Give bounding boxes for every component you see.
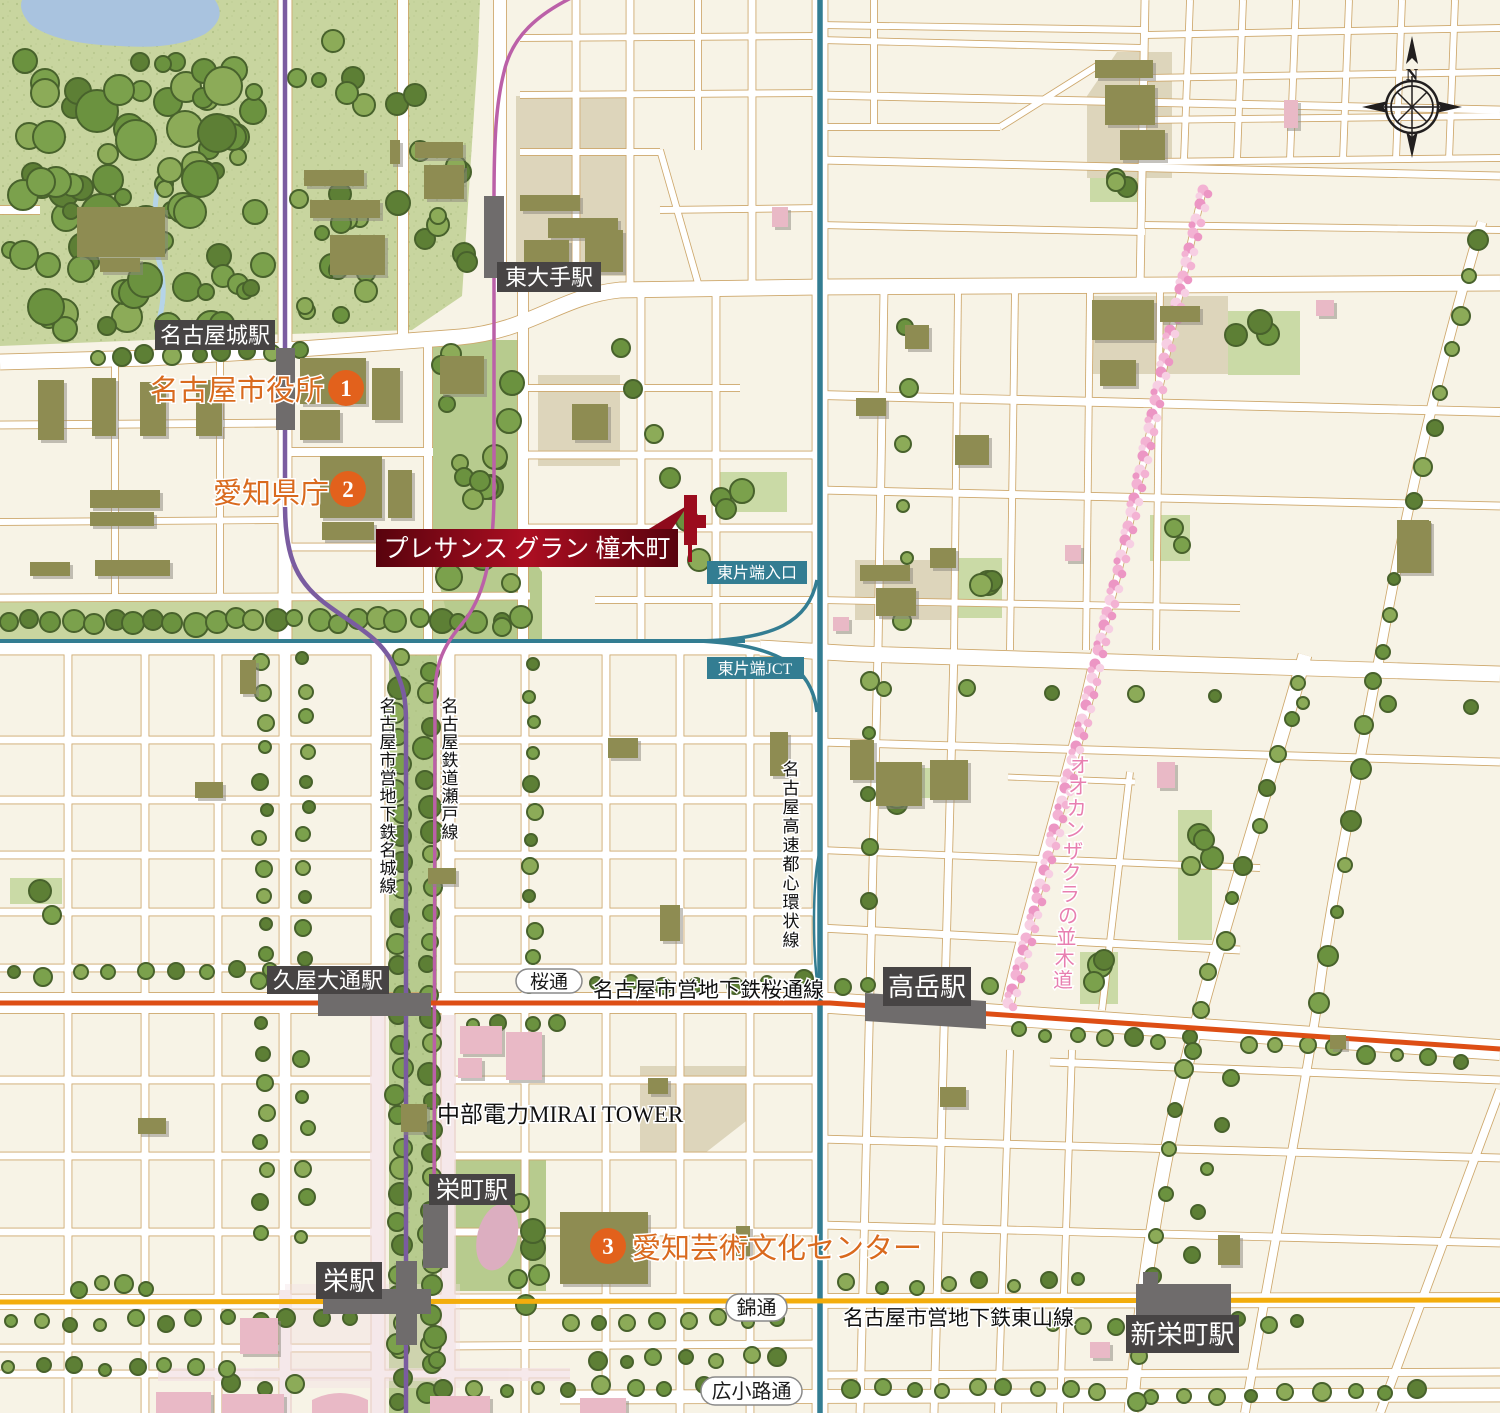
svg-text:道: 道	[1053, 969, 1073, 992]
svg-text:城: 城	[380, 859, 397, 878]
svg-text:都: 都	[783, 855, 800, 874]
svg-text:木: 木	[1055, 948, 1075, 971]
svg-text:屋: 屋	[783, 798, 800, 817]
svg-text:桜通: 桜通	[530, 971, 568, 993]
svg-text:東片端JCT: 東片端JCT	[718, 660, 793, 678]
svg-text:3: 3	[602, 1234, 614, 1259]
svg-text:市: 市	[380, 751, 397, 770]
svg-text:東片端入口: 東片端入口	[717, 564, 797, 582]
svg-text:N: N	[1406, 65, 1419, 84]
svg-text:名古屋市営地下鉄桜通線: 名古屋市営地下鉄桜通線	[593, 978, 824, 1002]
svg-text:古: 古	[442, 715, 459, 734]
svg-text:オ: オ	[1070, 755, 1090, 777]
svg-text:広小路通: 広小路通	[712, 1380, 792, 1403]
svg-text:名: 名	[380, 841, 397, 860]
svg-text:営: 営	[380, 769, 397, 788]
svg-text:線: 線	[442, 823, 459, 842]
svg-text:心: 心	[783, 874, 800, 893]
svg-text:線: 線	[783, 931, 800, 950]
svg-text:ン: ン	[1065, 820, 1085, 842]
svg-text:屋: 屋	[380, 733, 397, 752]
svg-text:愛知県庁: 愛知県庁	[213, 477, 329, 510]
svg-text:並: 並	[1056, 926, 1076, 949]
svg-text:鉄: 鉄	[380, 823, 397, 842]
svg-text:屋: 屋	[442, 733, 459, 752]
svg-text:東大手駅: 東大手駅	[505, 265, 593, 290]
svg-text:の: の	[1058, 906, 1078, 928]
svg-text:名古屋市営地下鉄東山線: 名古屋市営地下鉄東山線	[843, 1306, 1074, 1330]
svg-text:新栄町駅: 新栄町駅	[1130, 1320, 1234, 1349]
svg-text:名: 名	[442, 697, 459, 716]
svg-text:名: 名	[783, 760, 800, 779]
svg-text:瀬: 瀬	[442, 787, 459, 806]
svg-text:カ: カ	[1067, 798, 1087, 820]
svg-text:愛知芸術文化センター: 愛知芸術文化センター	[632, 1232, 922, 1265]
svg-text:栄町駅: 栄町駅	[436, 1177, 508, 1204]
svg-text:道: 道	[442, 769, 459, 788]
svg-text:錦通: 錦通	[737, 1297, 777, 1320]
svg-text:中部電力MIRAI TOWER: 中部電力MIRAI TOWER	[437, 1102, 684, 1127]
svg-text:名古屋市役所: 名古屋市役所	[150, 374, 324, 407]
svg-text:高: 高	[783, 817, 800, 836]
svg-text:栄駅: 栄駅	[323, 1267, 375, 1296]
svg-text:久屋大通駅: 久屋大通駅	[273, 968, 383, 993]
svg-text:下: 下	[380, 805, 397, 824]
svg-text:ラ: ラ	[1060, 884, 1080, 906]
svg-text:地: 地	[380, 787, 397, 806]
svg-text:オ: オ	[1068, 777, 1088, 799]
svg-text:1: 1	[340, 376, 352, 401]
svg-text:古: 古	[783, 779, 800, 798]
svg-text:プレサンス グラン 橦木町: プレサンス グラン 橦木町	[383, 535, 670, 563]
svg-text:戸: 戸	[442, 805, 459, 824]
svg-text:名: 名	[380, 697, 397, 716]
svg-text:ク: ク	[1062, 862, 1082, 885]
svg-text:線: 線	[380, 877, 397, 896]
svg-text:鉄: 鉄	[442, 751, 459, 770]
svg-text:状: 状	[783, 912, 800, 931]
svg-text:名古屋城駅: 名古屋城駅	[160, 323, 270, 348]
svg-text:速: 速	[783, 836, 800, 855]
svg-text:高岳駅: 高岳駅	[888, 973, 966, 1002]
svg-text:2: 2	[342, 477, 354, 502]
svg-text:ザ: ザ	[1063, 841, 1083, 863]
svg-text:古: 古	[380, 715, 397, 734]
svg-text:環: 環	[783, 893, 800, 912]
